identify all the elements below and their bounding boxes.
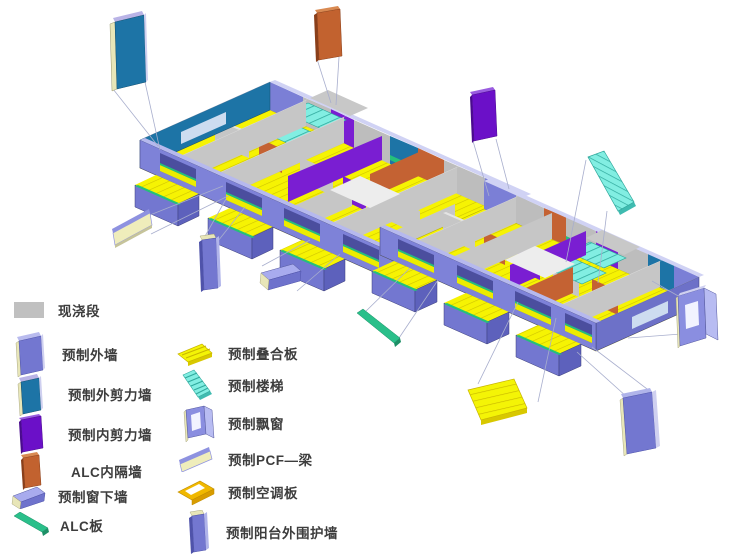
callout-pcf-beam <box>112 209 152 248</box>
page: 现浇段 预制外墙 预制外剪力墙 预制内剪力墙 <box>0 0 748 560</box>
callout-stairs <box>588 151 636 215</box>
building-exploded-diagram <box>0 0 748 560</box>
callout-window-sill-wall <box>260 264 301 290</box>
callout-bay-window <box>676 285 718 348</box>
callout-composite-slab <box>468 379 527 425</box>
callout-alc-panel <box>357 309 401 347</box>
callout-interior-shear-wall <box>470 87 497 143</box>
callout-balcony-enclosure-wall <box>199 234 221 292</box>
callout-exterior-wall <box>620 388 660 456</box>
callout-exterior-shear-wall <box>110 11 148 91</box>
callout-alc-partition <box>314 6 342 62</box>
